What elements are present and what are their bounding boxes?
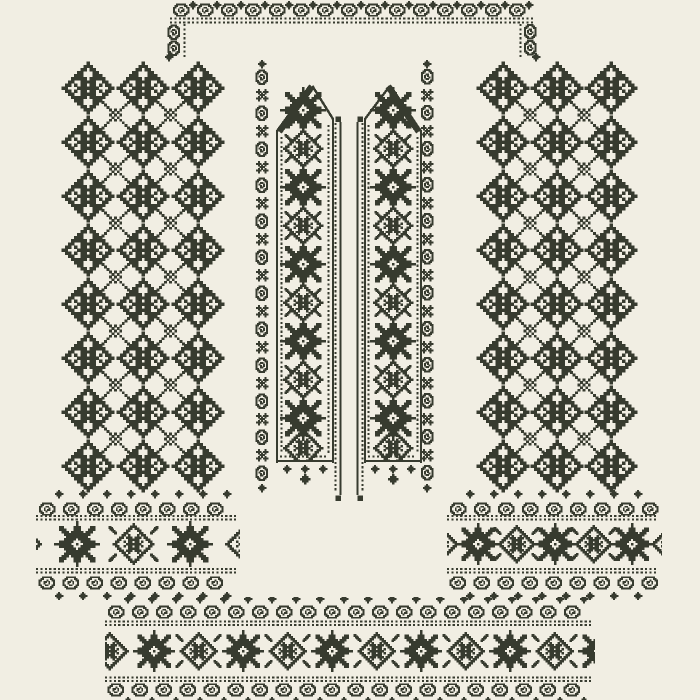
right-band-stars <box>370 87 416 441</box>
hem-bottom-scroll <box>108 683 589 700</box>
left-band-point <box>300 474 310 484</box>
right-lattice-rosettes <box>477 62 638 493</box>
neck-bracket-right-curls <box>524 24 536 55</box>
left-cuff-top-dots-a <box>36 515 236 517</box>
right-band-scallop <box>371 465 415 473</box>
right-cuff-stars <box>457 523 653 565</box>
right-lattice-links <box>516 101 598 453</box>
left-band-bottom-dots <box>280 455 326 457</box>
right-cuff-bottom-dots-b <box>447 571 656 573</box>
left-band-scallop <box>283 465 327 473</box>
neck-bracket-left-dots <box>183 24 185 57</box>
right-cuff-bottom-scroll <box>450 576 658 600</box>
hem-top-dots-a <box>105 620 591 622</box>
right-band-point <box>388 474 398 484</box>
hem-bottom-dots-a <box>105 676 591 678</box>
left-lattice-links <box>101 101 184 453</box>
left-band-edge-dots-b <box>327 125 329 453</box>
right-band-edge-dots-a <box>416 137 418 452</box>
placket-left-dots <box>334 123 336 490</box>
left-band-outer-scroll <box>256 70 269 481</box>
embroidery-pattern-canvas <box>0 0 700 700</box>
neckline-dotline-b <box>170 21 533 23</box>
left-cuff-medallions <box>0 523 267 565</box>
hem-bottom-dots-b <box>105 680 591 682</box>
left-band-stars <box>280 87 326 441</box>
left-cuff-top-dots-b <box>36 518 236 520</box>
hem-top-dots-b <box>105 624 591 626</box>
left-cuff-bottom-scroll <box>39 576 232 600</box>
right-cuff-top-scroll <box>450 490 658 516</box>
right-band-bottom-dots <box>368 455 414 457</box>
left-cuff-bottom-dots-b <box>36 571 236 573</box>
left-cuff-bottom-dots-a <box>36 568 236 570</box>
left-cuff-top-scroll <box>39 490 231 516</box>
neckline-dotline-a <box>170 17 533 19</box>
neck-bracket-left-curls <box>168 25 180 56</box>
right-band-outer-scroll <box>421 69 433 480</box>
left-lattice-rosettes <box>62 62 225 493</box>
placket-right-dots <box>361 123 363 490</box>
hem-top-scroll <box>108 595 588 619</box>
right-cuff-top-dots-b <box>447 518 656 520</box>
neck-bracket-right-dots <box>519 24 521 57</box>
right-band-edge-dots-b <box>367 125 369 453</box>
neckline-scroll-strip <box>173 1 533 17</box>
right-cuff-bottom-dots-a <box>447 568 656 570</box>
left-band-edge-dots-a <box>280 137 282 452</box>
embroidery-pattern-sheet <box>0 0 700 700</box>
